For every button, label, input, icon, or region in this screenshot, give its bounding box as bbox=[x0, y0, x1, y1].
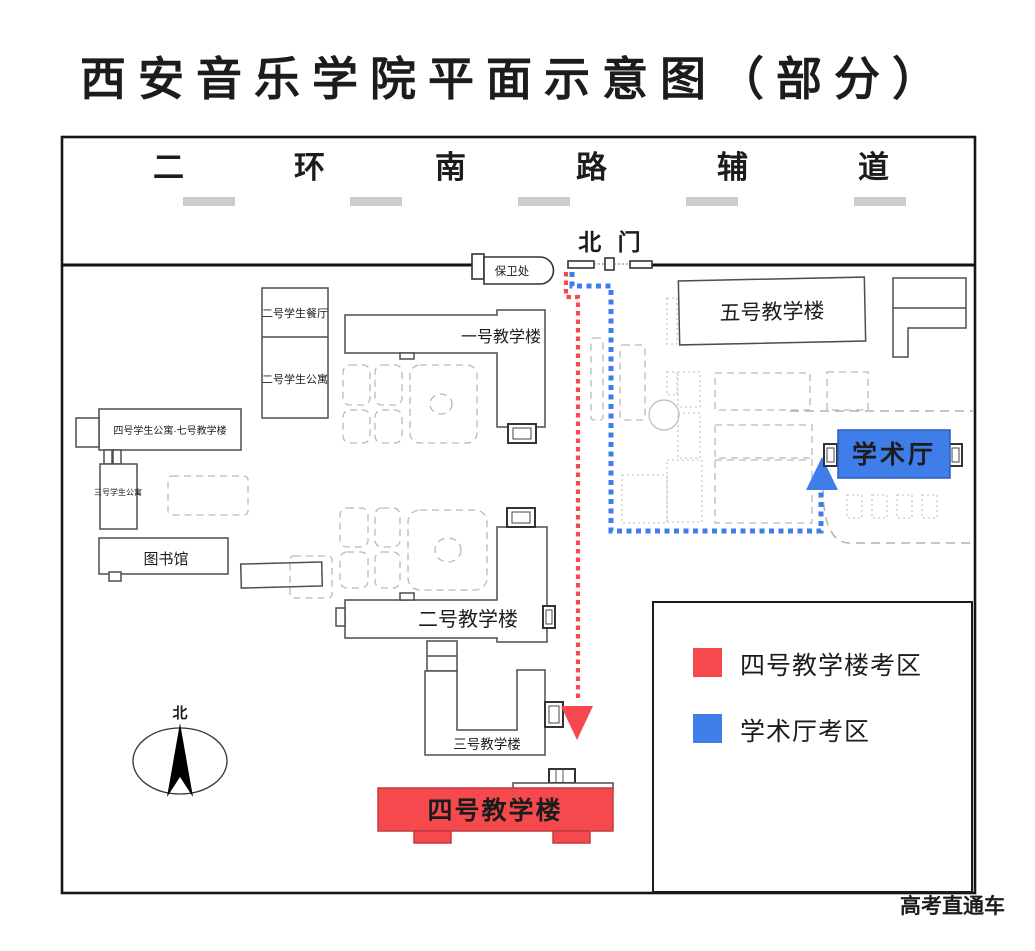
page-title: 西安音乐学院平面示意图（部分） bbox=[80, 53, 950, 105]
garden bbox=[715, 425, 812, 458]
lane-marking bbox=[350, 197, 402, 206]
building-apartment4-teaching7: 四号学生公寓·七号教学楼 bbox=[76, 409, 241, 450]
building-academic-hall: 学术厅 bbox=[824, 430, 962, 478]
watermark: 高考直通车 bbox=[900, 894, 1005, 918]
teaching3-label: 三号教学楼 bbox=[453, 737, 521, 752]
plaza-circle bbox=[649, 400, 679, 430]
garden bbox=[343, 410, 370, 443]
building-teaching2: 二号教学楼 bbox=[336, 508, 555, 642]
academic-hall-door-left-inner bbox=[827, 448, 834, 462]
teaching1-entrance-inner bbox=[513, 428, 531, 439]
teaching2-notch-top bbox=[400, 593, 414, 600]
teaching3-entrance-inner bbox=[549, 706, 559, 723]
campus-map: 西安音乐学院平面示意图（部分） 二环南路辅道 北 门 保卫处 二号学生餐厅 二号… bbox=[0, 0, 1035, 946]
garden bbox=[408, 510, 487, 590]
legend: 四号教学楼考区 学术厅考区 bbox=[653, 602, 972, 892]
lane-marking bbox=[183, 197, 235, 206]
garden bbox=[897, 495, 912, 518]
apartment2-label: 二号学生公寓 bbox=[262, 372, 328, 386]
garden bbox=[375, 410, 402, 443]
compass-needle-icon bbox=[167, 723, 193, 797]
library-label: 图书馆 bbox=[143, 551, 188, 568]
compass: 北 bbox=[133, 705, 227, 797]
legend-label-red: 四号教学楼考区 bbox=[740, 652, 922, 680]
library-notch bbox=[109, 572, 121, 581]
gate-bar bbox=[630, 261, 652, 268]
lane-markings bbox=[183, 197, 906, 206]
road-label: 二环南路辅道 bbox=[153, 150, 999, 185]
gate-bar bbox=[568, 261, 594, 268]
apartment4-wing bbox=[76, 418, 99, 447]
teaching2-notch-left bbox=[336, 608, 345, 626]
teaching4-steps bbox=[549, 769, 575, 783]
security-office-label: 保卫处 bbox=[495, 264, 530, 278]
garden bbox=[410, 365, 477, 443]
garden bbox=[375, 365, 402, 405]
garden bbox=[667, 298, 677, 344]
gate-post bbox=[605, 258, 614, 270]
garden bbox=[343, 365, 370, 405]
connector-2 bbox=[113, 450, 121, 464]
garden bbox=[715, 460, 812, 523]
garden bbox=[922, 495, 937, 518]
building-teaching5: 五号教学楼 bbox=[678, 277, 865, 345]
garden bbox=[622, 475, 667, 523]
garden bbox=[678, 413, 700, 458]
garden bbox=[827, 372, 868, 410]
garden bbox=[667, 372, 677, 395]
building-library: 图书馆 bbox=[99, 538, 228, 581]
legend-box bbox=[653, 602, 972, 892]
building-security-office: 保卫处 bbox=[472, 254, 554, 284]
connector-1 bbox=[104, 450, 112, 464]
teaching5-label: 五号教学楼 bbox=[719, 300, 824, 325]
garden bbox=[375, 552, 400, 588]
ne-building-shape bbox=[893, 278, 966, 357]
teaching2-entrance-top-inner bbox=[512, 512, 530, 523]
academic-hall-door-right-inner bbox=[952, 448, 959, 462]
garden bbox=[678, 372, 700, 407]
compass-north-label: 北 bbox=[172, 705, 187, 722]
building-teaching4: 四号教学楼 bbox=[378, 769, 613, 843]
teaching4-tab bbox=[553, 831, 590, 843]
teaching2-entrance-right-inner bbox=[546, 610, 552, 624]
route-red-arrow bbox=[561, 706, 593, 740]
teaching1-shape bbox=[345, 310, 545, 427]
teaching2-label: 二号教学楼 bbox=[418, 608, 518, 631]
teaching1-label: 一号教学楼 bbox=[461, 328, 541, 346]
north-gate-label: 北 门 bbox=[578, 229, 645, 255]
lane-marking bbox=[518, 197, 570, 206]
south-library-shape bbox=[241, 562, 323, 588]
garden bbox=[591, 338, 603, 420]
garden bbox=[340, 508, 368, 547]
garden bbox=[620, 345, 645, 420]
building-cafeteria-apartment2: 二号学生餐厅 二号学生公寓 bbox=[262, 288, 328, 418]
garden bbox=[872, 495, 887, 518]
cafeteria2-label: 二号学生餐厅 bbox=[262, 306, 328, 320]
building-apartment3: 三号学生公寓 bbox=[94, 464, 142, 529]
garden bbox=[375, 508, 400, 547]
legend-swatch-blue bbox=[693, 714, 722, 743]
route-red bbox=[561, 272, 593, 740]
garden bbox=[340, 552, 368, 588]
academic-hall-label: 学术厅 bbox=[852, 440, 936, 469]
legend-swatch-red bbox=[693, 648, 722, 677]
building-unlabeled-northeast bbox=[893, 278, 966, 357]
building-unlabeled-south-library bbox=[241, 562, 323, 588]
lane-marking bbox=[686, 197, 738, 206]
apartment4-teaching7-label: 四号学生公寓·七号教学楼 bbox=[113, 424, 226, 437]
route-red-line bbox=[566, 272, 578, 700]
security-office-wing bbox=[472, 254, 484, 279]
garden-center bbox=[430, 394, 452, 414]
garden bbox=[667, 460, 702, 522]
garden bbox=[168, 476, 248, 515]
apartment3-label: 三号学生公寓 bbox=[94, 487, 142, 497]
garden bbox=[715, 373, 810, 410]
teaching1-notch bbox=[400, 353, 414, 359]
teaching4-label: 四号教学楼 bbox=[427, 796, 562, 825]
north-gate bbox=[568, 258, 652, 270]
building-teaching3: 三号教学楼 bbox=[425, 641, 563, 755]
garden-center bbox=[435, 538, 461, 562]
campus-map-page: 西安音乐学院平面示意图（部分） 二环南路辅道 北 门 保卫处 二号学生餐厅 二号… bbox=[0, 0, 1035, 946]
lane-marking bbox=[854, 197, 906, 206]
legend-label-blue: 学术厅考区 bbox=[740, 718, 870, 746]
garden bbox=[847, 495, 862, 518]
teaching4-tab bbox=[414, 831, 451, 843]
